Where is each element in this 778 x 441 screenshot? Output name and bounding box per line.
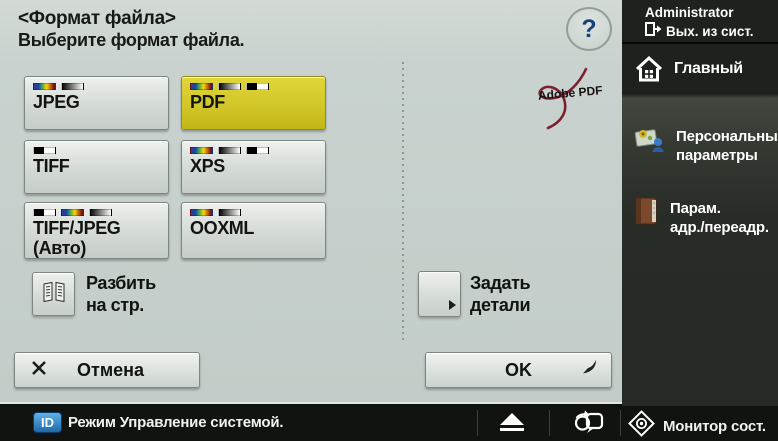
eject-media-button[interactable] [500,413,524,431]
page-subtitle: Выберите формат файла. [18,30,244,51]
split-pages-icon [41,279,67,310]
set-details-button[interactable] [418,271,461,317]
file-format-dialog: <Формат файла> Выберите формат файла. ? … [0,0,622,404]
format-button-tiff[interactable]: TIFF [24,140,169,194]
sidebar-item-label: Персональные параметры [676,124,778,165]
color-capability-indicators [190,147,317,155]
cancel-button-label: Отмена [77,360,144,381]
set-details-label: Задать детали [470,272,530,316]
format-button-ooxml[interactable]: OOXML [181,202,326,259]
id-badge-icon: ID [33,412,62,433]
help-button[interactable]: ? [566,7,612,51]
divide-into-pages-button[interactable] [32,272,75,316]
statusbar-divider [549,410,550,436]
status-bar: ID Режим Управление системой. [0,406,778,441]
ok-button-label: OK [505,360,532,381]
dotted-divider [402,62,404,344]
ok-button[interactable]: OK [425,352,612,388]
sidebar-item-address-settings[interactable]: Парам. адр./переадр. [634,196,769,237]
page-title: <Формат файла> [18,8,176,30]
format-button-tiff-jpeg-auto[interactable]: TIFF/JPEG (Авто) [24,202,169,259]
color-capability-indicators [33,209,160,217]
format-button-label: OOXML [190,218,317,238]
logout-icon [645,22,662,41]
address-book-icon [634,196,660,231]
divide-into-pages-label: Разбить на стр. [86,272,156,316]
adobe-pdf-logo: Adobe PDF [530,66,612,132]
counter-check-button[interactable] [573,409,605,441]
color-capability-indicators [33,147,160,155]
color-capability-indicators [190,83,317,91]
sidebar-item-label: Парам. адр./переадр. [670,196,769,237]
eject-icon [500,413,524,425]
sidebar-item-home[interactable]: Главный [634,55,743,88]
logged-in-user: Administrator [645,5,734,20]
sidebar-item-label: Главный [674,55,743,78]
sidebar: Administrator Вых. из сист. [622,0,778,406]
format-button-label: XPS [190,156,317,176]
statusbar-divider [477,410,478,436]
format-button-label: PDF [190,92,317,112]
home-icon [634,55,664,88]
status-monitor-label: Монитор сост. [663,418,766,435]
status-monitor-button[interactable]: Монитор сост. [628,410,766,441]
cancel-button[interactable]: Отмена [14,352,200,388]
color-capability-indicators [33,83,160,91]
format-button-label: TIFF/JPEG [33,218,160,238]
status-monitor-icon [628,410,655,441]
sidebar-divider [622,42,778,44]
logout-button[interactable]: Вых. из сист. [645,22,754,41]
format-button-jpeg[interactable]: JPEG [24,76,169,130]
close-icon [31,360,47,381]
color-capability-indicators [190,209,317,217]
logout-label: Вых. из сист. [666,24,754,39]
format-button-pdf[interactable]: PDF [181,76,326,130]
system-mode-text: Режим Управление системой. [68,414,283,431]
enter-arrow-icon [579,358,599,381]
format-button-label: JPEG [33,92,160,112]
format-button-xps[interactable]: XPS [181,140,326,194]
right-arrow-icon [449,300,456,310]
format-button-label: TIFF [33,156,160,176]
counter-check-icon [573,424,605,441]
sidebar-item-personal-settings[interactable]: Персональные параметры [634,124,778,165]
printer-touchscreen: <Формат файла> Выберите формат файла. ? … [0,0,778,441]
statusbar-divider [620,410,621,436]
question-mark-icon: ? [581,15,596,44]
personal-settings-icon [634,124,666,159]
